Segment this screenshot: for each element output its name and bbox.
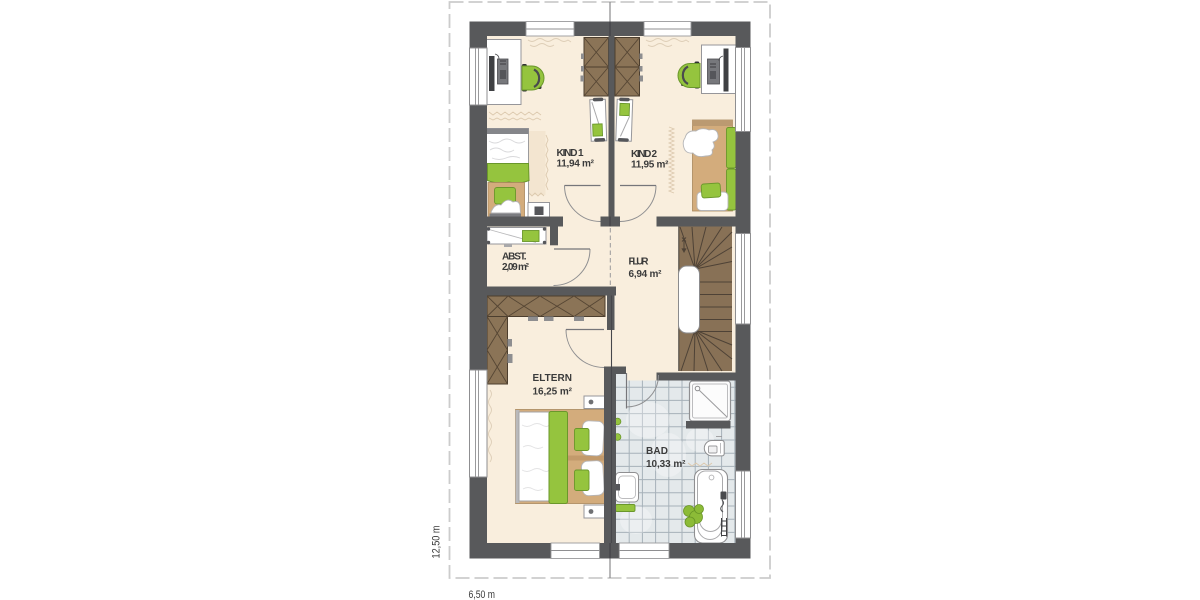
svg-text:12,50 m: 12,50 m xyxy=(431,526,443,559)
svg-text:16,25 m²: 16,25 m² xyxy=(533,387,573,398)
svg-text:ABST.: ABST. xyxy=(502,252,527,263)
svg-text:FLUR: FLUR xyxy=(629,257,650,268)
svg-text:10,33 m²: 10,33 m² xyxy=(646,459,686,470)
svg-text:BAD: BAD xyxy=(646,446,668,457)
svg-text:6,50 m: 6,50 m xyxy=(469,589,496,600)
svg-text:11,94 m²: 11,94 m² xyxy=(557,159,595,170)
svg-text:11,95 m²: 11,95 m² xyxy=(631,160,669,171)
svg-text:2,09 m²: 2,09 m² xyxy=(502,262,530,273)
svg-text:ELTERN: ELTERN xyxy=(533,373,573,384)
svg-text:6,94 m²: 6,94 m² xyxy=(629,269,663,280)
svg-text:KIND 2: KIND 2 xyxy=(631,149,657,160)
svg-text:KIND 1: KIND 1 xyxy=(557,148,584,159)
